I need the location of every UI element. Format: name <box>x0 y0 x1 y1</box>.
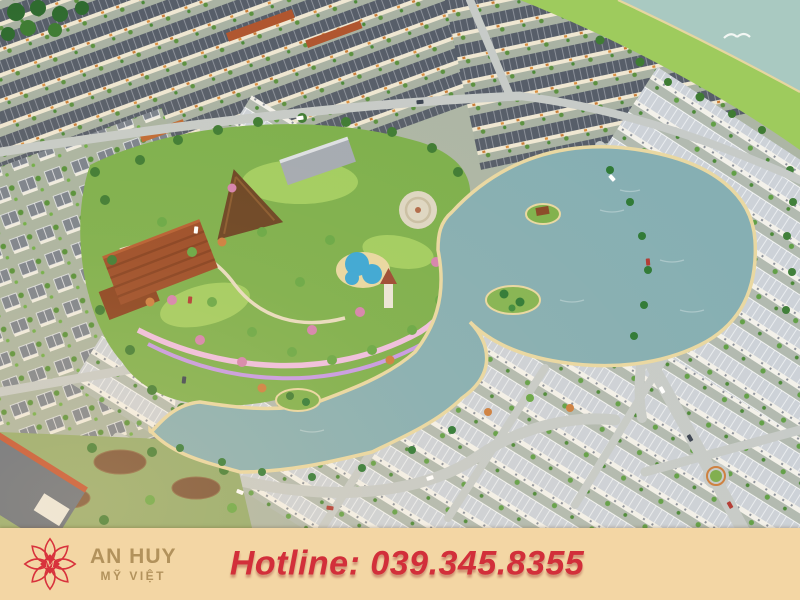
sunlight-overlay <box>0 0 800 528</box>
brand-name: AN HUY <box>90 546 177 568</box>
masterplan-aerial-render <box>0 0 800 528</box>
lotus-logo-icon: M <box>22 536 78 592</box>
brand-subname: MỸ VIỆT <box>101 570 167 583</box>
footer-banner: M AN HUY MỸ VIỆT Hotline: 039.345.8355 <box>0 528 800 600</box>
brand-logo: M AN HUY MỸ VIỆT <box>22 536 177 592</box>
logo-monogram: M <box>44 560 55 571</box>
marketing-image: M AN HUY MỸ VIỆT Hotline: 039.345.8355 <box>0 0 800 600</box>
hotline-text: Hotline: 039.345.8355 <box>230 545 584 584</box>
